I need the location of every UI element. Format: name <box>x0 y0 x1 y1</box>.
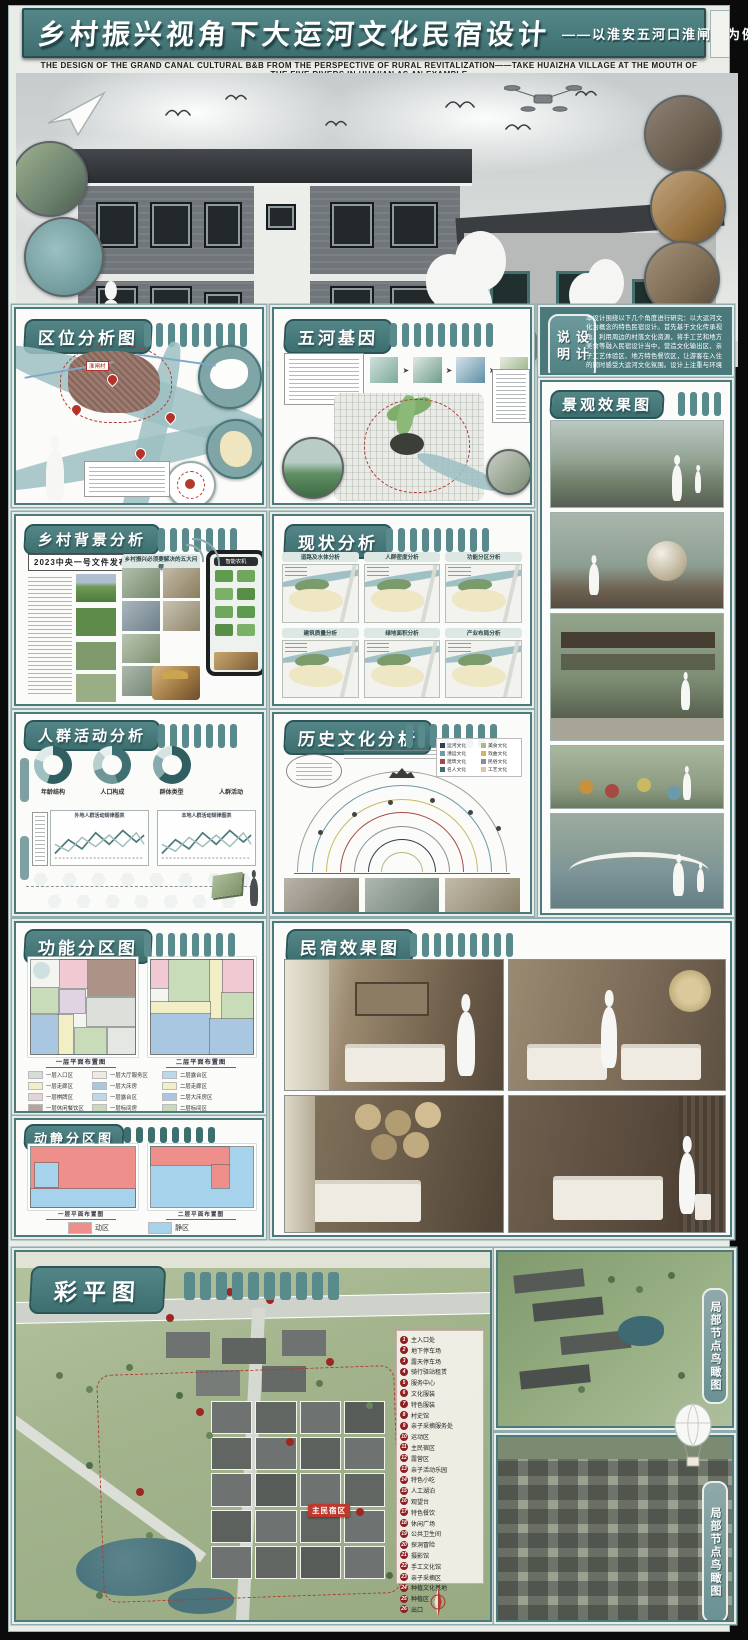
legend-item: 一层入口区 <box>28 1071 92 1079</box>
floor-plan-2 <box>150 959 254 1055</box>
banner-side-block <box>710 10 730 58</box>
plan-caption: 一层平面布置图 <box>46 1057 116 1068</box>
section-title: 乡村背景分析 <box>23 524 161 555</box>
photo-chip <box>163 568 201 598</box>
farmer-thumb <box>214 652 258 670</box>
machinery-thumbs <box>215 570 233 582</box>
section-title: 五河基因 <box>283 319 393 354</box>
arrow-icon: ➤ <box>446 366 453 375</box>
person-silhouette <box>453 994 479 1076</box>
map-pin-label: 淮闸村 <box>86 361 109 371</box>
poster-canvas: 乡村振兴视角下大运河文化民宿设计 ——以淮安五河口淮闸村为例 THE DESIG… <box>0 0 748 1640</box>
legend-item: 一层标间房 <box>92 1104 156 1112</box>
header-bars <box>124 1127 215 1143</box>
person-silhouette <box>671 854 686 896</box>
render-photo-plaza <box>550 512 724 609</box>
analysis-map: 产业布局分析 <box>445 628 522 699</box>
render-photo-playground <box>550 745 724 809</box>
note-box <box>84 461 170 497</box>
plan-legend-item: 14特色小吃 <box>400 1475 480 1484</box>
inset-photo-interior <box>650 169 726 245</box>
wall-art <box>355 982 429 1016</box>
analysis-map-grid: 道路及水体分析 人群密度分析 功能分区分析 建筑质量分析 <box>282 552 522 698</box>
room-render <box>284 1095 504 1233</box>
legend-item: 动区 <box>68 1222 148 1234</box>
section-crowd-activity: 人群活动分析 年龄结构人口构成群体类型人群活动 外地人群活动规律图表 本地 <box>14 712 264 914</box>
zoning-legend: 动区静区 <box>68 1222 228 1237</box>
line-charts: 外地人群活动规律图表 本地人群活动规律图表 <box>50 810 256 866</box>
zoning-plan-2 <box>150 1146 254 1208</box>
room-render <box>508 1095 726 1233</box>
phone-tag: 智能农机 <box>214 557 258 566</box>
plan-legend-item: 22手工文化馆 <box>400 1562 480 1571</box>
sphere-sculpture <box>647 541 687 581</box>
play-equipment <box>579 780 593 794</box>
bridge-arc <box>569 852 709 891</box>
header-bars <box>144 323 247 347</box>
render-photo-street <box>550 420 724 508</box>
section-title: 景观效果图 <box>549 390 665 419</box>
donut-charts: 年龄结构人口构成群体类型人群活动 <box>26 746 258 796</box>
window <box>150 202 192 248</box>
section-dynamic-static-zoning: 动静分区图 一层平面布置图 二层平面布置图 动区静区 <box>14 1118 264 1237</box>
culture-legend-item: 漕运文化 <box>440 750 477 757</box>
north-arrow-icon <box>426 1586 450 1618</box>
window-light <box>285 960 329 1090</box>
section-design-notes: 设计说明 本设计围绕以下几个角度进行研究：以大运河文化为概念的特色民宿设计。首先… <box>540 307 732 375</box>
poster-title: 乡村振兴视角下大运河文化民宿设计 <box>37 13 552 53</box>
legend-item: 二层露台区 <box>162 1071 262 1079</box>
plan-boundary <box>96 1365 402 1603</box>
culture-legend-item: 美食文化 <box>481 742 518 749</box>
person-silhouette <box>248 870 260 906</box>
plan-legend-item: 8村史馆 <box>400 1411 480 1420</box>
window <box>266 204 296 230</box>
aerial-label: 局部节点鸟瞰图 <box>702 1288 728 1404</box>
section-current-analysis: 现状分析 道路及水体分析 人群密度分析 功能分区分析 <box>272 514 532 706</box>
header-bars <box>184 1272 339 1300</box>
legend-item: 一层大厅服务区 <box>92 1071 156 1079</box>
person-silhouette <box>679 672 692 710</box>
analysis-map: 道路及水体分析 <box>282 552 359 623</box>
header-bars <box>144 933 235 957</box>
culture-legend-item: 工艺文化 <box>481 766 518 773</box>
legend-item: 一层休闲餐饮区 <box>28 1104 92 1112</box>
section-five-river-genes: 五河基因 ➤ ➤ ➤ <box>272 307 532 505</box>
plan-legend-item: 4骑行驿站租赁 <box>400 1367 480 1376</box>
news-photos <box>76 574 116 602</box>
room-render <box>284 959 504 1091</box>
plan-legend-item: 19公共卫生间 <box>400 1529 480 1538</box>
province-shape <box>220 431 252 467</box>
window <box>204 202 242 248</box>
header-bars <box>678 392 721 416</box>
resort-buildings <box>166 1332 210 1358</box>
header-bars <box>158 724 237 748</box>
hot-air-balloon-icon <box>672 1403 714 1469</box>
plan-legend-item: 5服务中心 <box>400 1378 480 1387</box>
step-thumb <box>413 357 441 383</box>
china-shape <box>210 359 248 389</box>
person-silhouette <box>587 555 601 595</box>
iso-site-chip <box>211 872 242 899</box>
plan-legend-item: 16观望台 <box>400 1497 480 1506</box>
floor1-legend: 一层入口区一层大厅服务区一层走廊区一层大床房一层棋牌区一层露台区一层休闲餐饮区一… <box>28 1071 156 1113</box>
donut-chart: 群体类型 <box>145 746 199 796</box>
plan-legend-item: 13亲子活动乐园 <box>400 1465 480 1474</box>
roof <box>66 149 472 186</box>
legend-item: 一层走廊区 <box>28 1082 92 1090</box>
target-map-inset <box>166 461 216 505</box>
aerial-pool <box>618 1316 664 1346</box>
news-headline: 2023中央一号文件发布 <box>28 554 134 571</box>
legend-item: 二层走廊区 <box>162 1082 262 1090</box>
header-bars <box>410 933 513 957</box>
render-photo-pavilion <box>550 613 724 741</box>
culture-legend-item: 名人文化 <box>440 766 477 773</box>
plan-caption: 一层平面布置图 <box>46 1210 116 1220</box>
floor-plan-1 <box>30 959 136 1055</box>
plan-legend-item: 20探洞冒险 <box>400 1540 480 1549</box>
analysis-map: 绿地面积分析 <box>364 628 441 699</box>
plan-legend-item: 6文化服装 <box>400 1389 480 1398</box>
photo-chip <box>163 601 201 631</box>
render-photo-bridge <box>550 813 724 909</box>
person-silhouette <box>42 435 68 501</box>
plan-legend-item: 18休闲广场 <box>400 1519 480 1528</box>
plan-legend-item: 11主民宿区 <box>400 1443 480 1452</box>
straw-hat <box>162 670 188 679</box>
window <box>96 202 138 248</box>
photo-chip <box>122 634 160 664</box>
event-dots <box>318 830 323 835</box>
legend-item: 二层标间区 <box>162 1104 262 1112</box>
analysis-map: 功能分区分析 <box>445 552 522 623</box>
step-thumb <box>370 357 398 383</box>
suitcase <box>695 1194 711 1220</box>
donut-chart: 人口构成 <box>85 746 139 796</box>
bed <box>527 1048 607 1080</box>
photo-chip <box>163 634 201 664</box>
bed <box>621 1048 701 1080</box>
chart-note <box>32 812 48 866</box>
side-text-box <box>492 369 530 423</box>
design-notes-text: 本设计围绕以下几个角度进行研究：以大运河文化为概念的特色民宿设计。首先基于文化传… <box>586 314 722 368</box>
culture-legend-item: 建筑文化 <box>440 758 477 765</box>
poster-body: 乡村振兴视角下大运河文化民宿设计 ——以淮安五河口淮闸村为例 THE DESIG… <box>8 5 730 1632</box>
smartphone: 智能农机 <box>206 550 264 676</box>
aerial-label: 局部节点鸟瞰图 <box>702 1481 728 1622</box>
bed <box>311 1184 421 1222</box>
drone-icon <box>504 79 582 115</box>
plan-legend-item: 10运动区 <box>400 1432 480 1441</box>
donut-chart: 年龄结构 <box>26 746 80 796</box>
window <box>330 202 374 248</box>
photo-chip <box>122 601 160 631</box>
farmer-photo <box>152 666 200 700</box>
culture-detail-blocks <box>284 878 520 912</box>
header-bars <box>386 528 489 552</box>
person-silhouette <box>669 455 685 501</box>
plan-caption: 二层平面布置图 <box>166 1057 236 1068</box>
plan-legend-item: 15人工湖泊 <box>400 1486 480 1495</box>
window-light <box>285 1096 315 1232</box>
plan-legend-item: 2地下停车场 <box>400 1346 480 1355</box>
section-history-culture: 历史文化分析 运河文化美食文化漕运文化戏曲文化建筑文化民俗文化名人文化工艺文化 <box>272 712 532 914</box>
news-text-column <box>28 574 72 694</box>
site-tag: 主民宿区 <box>308 1504 350 1517</box>
section-title: 彩平图 <box>29 1266 167 1314</box>
china-map-inset <box>198 345 262 409</box>
inset-map <box>24 217 104 297</box>
section-functional-zoning: 功能分区图 一层平面布置图 二层平面布置图 一层入 <box>14 921 264 1113</box>
room-render <box>508 959 726 1091</box>
person-silhouette <box>597 990 621 1068</box>
zoning-plan-1 <box>30 1146 136 1208</box>
analysis-map: 建筑质量分析 <box>282 628 359 699</box>
legend-item: 一层大床房 <box>92 1082 156 1090</box>
timeline-arcs <box>294 776 510 872</box>
tree-dots <box>56 1372 63 1379</box>
step-thumb <box>456 357 484 383</box>
header-bars <box>390 323 493 347</box>
person-silhouette <box>693 465 703 493</box>
plan-legend-item: 1主入口处 <box>400 1335 480 1344</box>
plan-legend-item: 9亲子采摘服务处 <box>400 1421 480 1430</box>
detail-photo <box>365 878 440 912</box>
target-dot <box>185 479 195 489</box>
inset-photo-road <box>486 449 532 495</box>
section-aerial-view-1: 局部节点鸟瞰图 <box>496 1250 734 1428</box>
section-rural-background: 乡村背景分析 2023中央一号文件发布 乡村振兴必须要解决的五大问题 智能农机 <box>14 514 264 706</box>
detail-photo <box>284 878 359 912</box>
legend-item: 一层露台区 <box>92 1093 156 1101</box>
rattan-decor <box>355 1104 381 1130</box>
person-silhouette <box>695 862 706 892</box>
section-landscape-renders: 景观效果图 <box>540 380 732 915</box>
plan-caption: 二层平面布置图 <box>166 1210 236 1220</box>
line-chart: 外地人群活动规律图表 <box>50 810 149 866</box>
plan-legend-item: 21摄影馆 <box>400 1551 480 1560</box>
section-bnb-renders: 民宿效果图 <box>272 921 732 1237</box>
detail-photo <box>445 878 520 912</box>
analysis-map: 人群密度分析 <box>364 552 441 623</box>
plan-legend-item: 23亲子采摘区 <box>400 1573 480 1582</box>
culture-legend-item: 民俗文化 <box>481 758 518 765</box>
jiangsu-map-inset <box>206 419 264 479</box>
plan-legend-item: 17特色餐饮 <box>400 1508 480 1517</box>
donut-chart: 人群活动 <box>204 746 258 796</box>
plan-legend-item: 3露天停车场 <box>400 1357 480 1366</box>
photo-chip <box>122 568 160 598</box>
pagoda-silhouette <box>389 768 415 778</box>
culture-legend-item: 戏曲文化 <box>481 750 518 757</box>
inset-photo-interior <box>644 95 722 173</box>
paper-plane-icon <box>44 89 108 139</box>
tree-dots <box>608 1276 615 1283</box>
legend-item: 静区 <box>148 1222 228 1234</box>
legend-item: 二层大床房区 <box>162 1093 262 1101</box>
culture-legend-item: 运河文化 <box>440 742 477 749</box>
legend-item: 一层棋牌区 <box>28 1093 92 1101</box>
section-location-analysis: 区位分析图 淮闸村 <box>14 307 264 505</box>
fan-art <box>669 970 711 1012</box>
bed <box>553 1180 663 1220</box>
village-map <box>334 393 484 501</box>
inset-photo-canal <box>282 437 344 499</box>
plan-legend: 1主入口处2地下停车场3露天停车场4骑行驿站租赁5服务中心6文化服装7特色服装8… <box>396 1330 484 1584</box>
inset-photo-interior <box>644 241 720 317</box>
plan-legend-item: 7特色服装 <box>400 1400 480 1409</box>
culture-legend: 运河文化美食文化漕运文化戏曲文化建筑文化民俗文化名人文化工艺文化 <box>436 738 522 777</box>
plan-legend-item: 12露营区 <box>400 1454 480 1463</box>
line-chart: 本地人群活动规律图表 <box>157 810 256 866</box>
pergola <box>561 632 715 648</box>
bed <box>345 1048 445 1082</box>
baseline <box>294 873 510 874</box>
person-silhouette <box>681 766 693 800</box>
path <box>551 718 723 740</box>
floor2-legend: 二层露台区二层走廊区二层大床房区二层标间区二层卫生间区 <box>162 1071 262 1113</box>
title-banner: 乡村振兴视角下大运河文化民宿设计 ——以淮安五河口淮闸村为例 <box>22 8 706 58</box>
section-master-plan: 彩平图 主民宿区 1主入口处2地下停车场3露天停车场4骑行驿站租赁5服务中心6文… <box>14 1250 492 1622</box>
arrow-icon: ➤ <box>402 366 409 375</box>
